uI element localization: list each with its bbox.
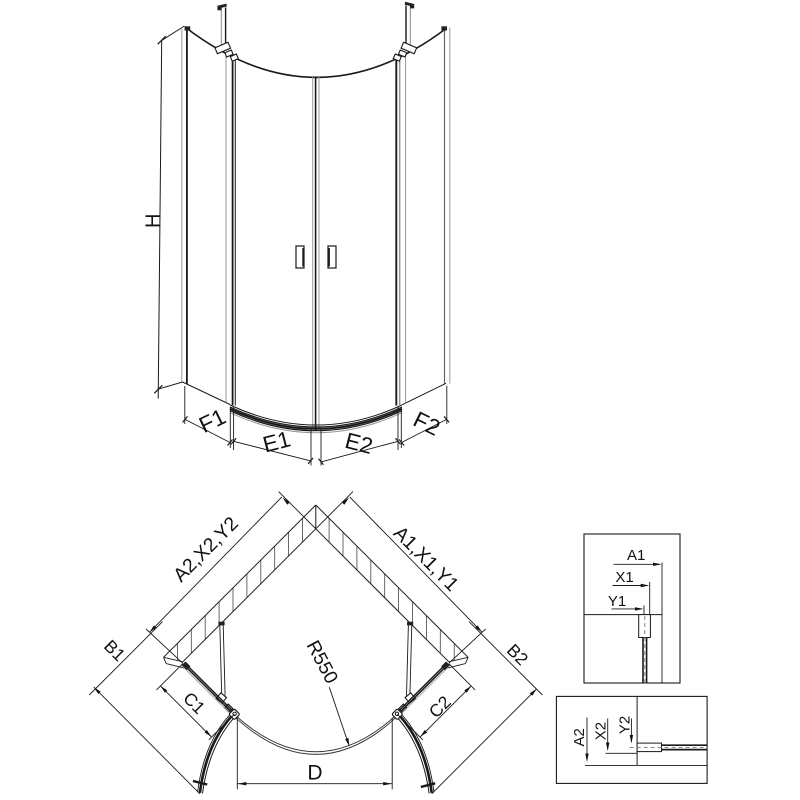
svg-text:D: D [307,762,322,785]
svg-text:X2: X2 [593,722,610,740]
svg-text:H: H [143,213,165,227]
svg-text:A1: A1 [627,547,645,564]
svg-text:Y1: Y1 [608,593,626,610]
svg-text:Y2: Y2 [616,716,633,734]
svg-text:X1: X1 [615,569,633,586]
svg-text:A2: A2 [571,728,588,746]
